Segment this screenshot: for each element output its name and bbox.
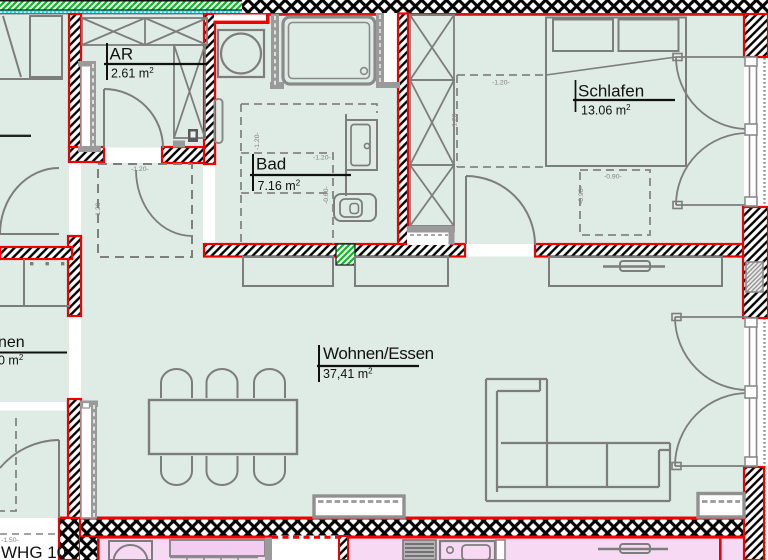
svg-text:-1.50-: -1.50-: [1, 537, 19, 544]
svg-text:-0.90-: -0.90-: [604, 174, 622, 181]
svg-text:7.16 m2: 7.16 m2: [258, 179, 301, 194]
svg-text:WHG 10: WHG 10: [1, 543, 66, 560]
svg-text:Bad: Bad: [256, 155, 286, 174]
svg-text:Schlafen: Schlafen: [578, 82, 644, 101]
svg-text:-0.90-: -0.90-: [578, 186, 585, 204]
svg-text:-0.60-: -0.60-: [323, 186, 330, 204]
svg-text:-1.20-: -1.20-: [131, 166, 149, 173]
svg-text:Wohnen/Essen: Wohnen/Essen: [323, 344, 434, 363]
svg-text:-1.20-: -1.20-: [313, 155, 331, 162]
svg-text:AR: AR: [110, 45, 134, 64]
svg-text:-1.20-: -1.20-: [95, 200, 102, 218]
svg-text:-1.20-: -1.20-: [254, 132, 261, 150]
svg-text:-1.20-: -1.20-: [492, 80, 510, 87]
svg-text:13.06 m2: 13.06 m2: [581, 103, 631, 118]
svg-text:nen: nen: [0, 334, 25, 351]
svg-text:2.61 m2: 2.61 m2: [111, 66, 154, 81]
svg-text:-1.20-: -1.20-: [452, 111, 459, 129]
svg-text:37,41 m2: 37,41 m2: [323, 367, 373, 382]
